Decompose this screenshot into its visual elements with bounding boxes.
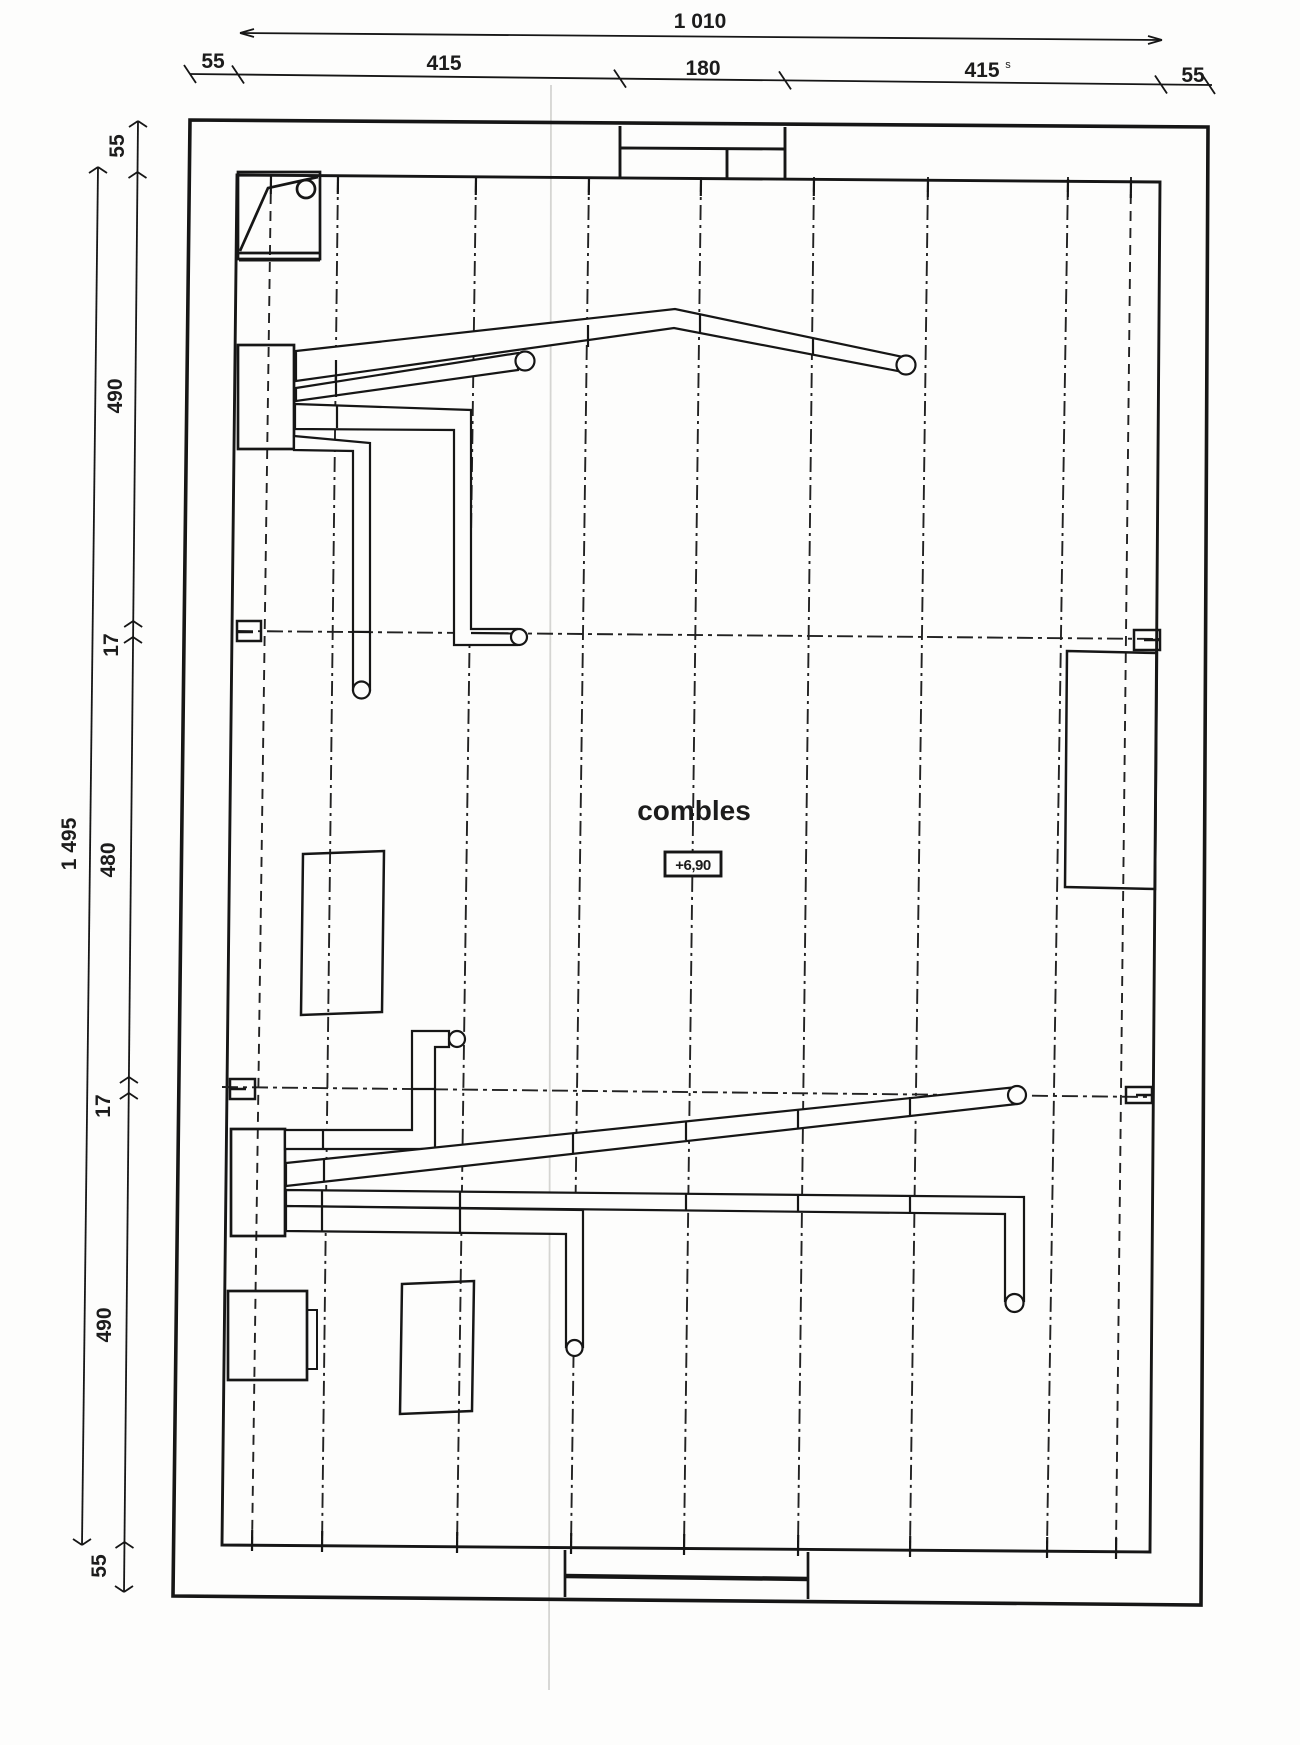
svg-text:1 010: 1 010 bbox=[674, 10, 727, 33]
svg-text:55: 55 bbox=[88, 1554, 111, 1578]
svg-text:55: 55 bbox=[106, 134, 129, 158]
svg-text:17: 17 bbox=[92, 1094, 115, 1117]
svg-text:combles: combles bbox=[637, 795, 751, 826]
svg-text:+6,90: +6,90 bbox=[675, 857, 711, 874]
svg-text:415: 415 bbox=[426, 52, 461, 75]
svg-text:490: 490 bbox=[104, 378, 127, 413]
svg-text:415: 415 bbox=[964, 59, 999, 82]
svg-text:480: 480 bbox=[97, 842, 120, 877]
svg-text:17: 17 bbox=[100, 633, 123, 656]
svg-text:55: 55 bbox=[1181, 64, 1205, 87]
svg-text:1 495: 1 495 bbox=[58, 817, 81, 870]
svg-text:180: 180 bbox=[685, 57, 720, 80]
svg-text:490: 490 bbox=[93, 1307, 116, 1342]
svg-text:55: 55 bbox=[201, 50, 225, 73]
svg-text:s: s bbox=[1005, 59, 1011, 71]
